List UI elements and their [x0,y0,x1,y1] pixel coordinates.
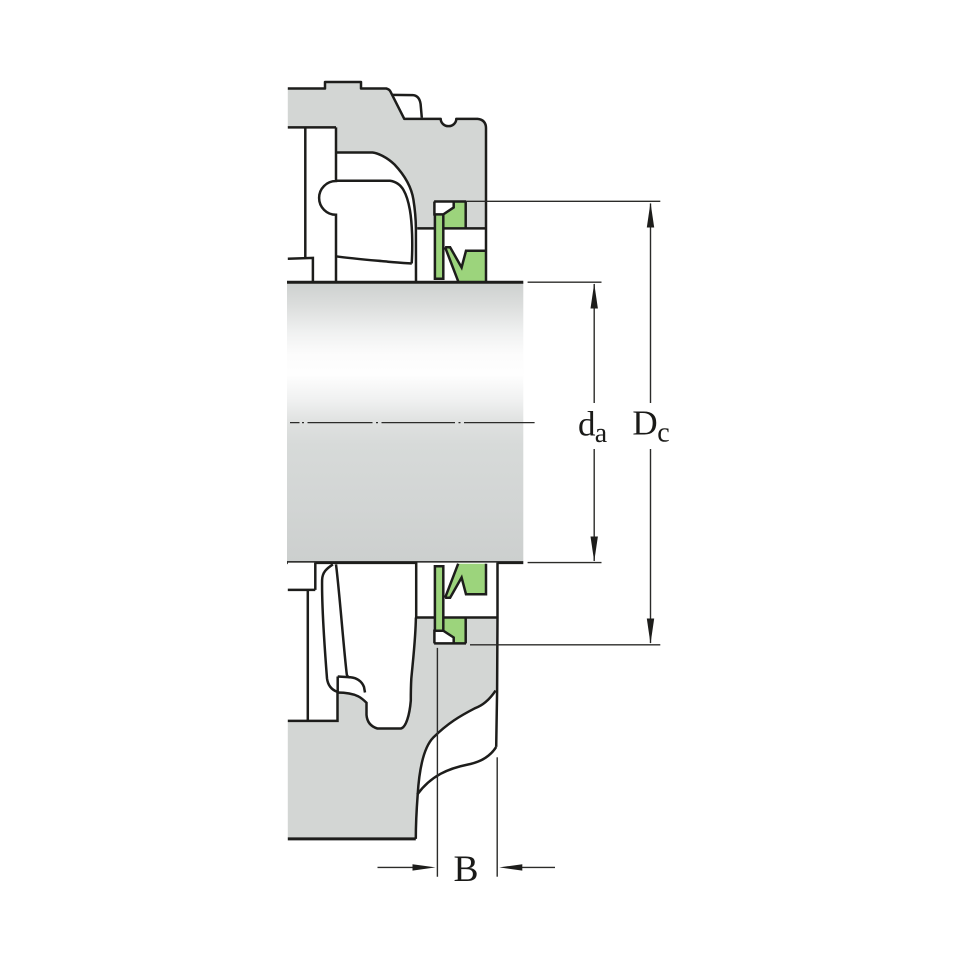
svg-text:B: B [454,849,479,890]
svg-text:d: d [578,405,596,444]
svg-text:a: a [595,418,608,449]
svg-text:D: D [632,404,657,443]
svg-text:c: c [657,418,669,449]
